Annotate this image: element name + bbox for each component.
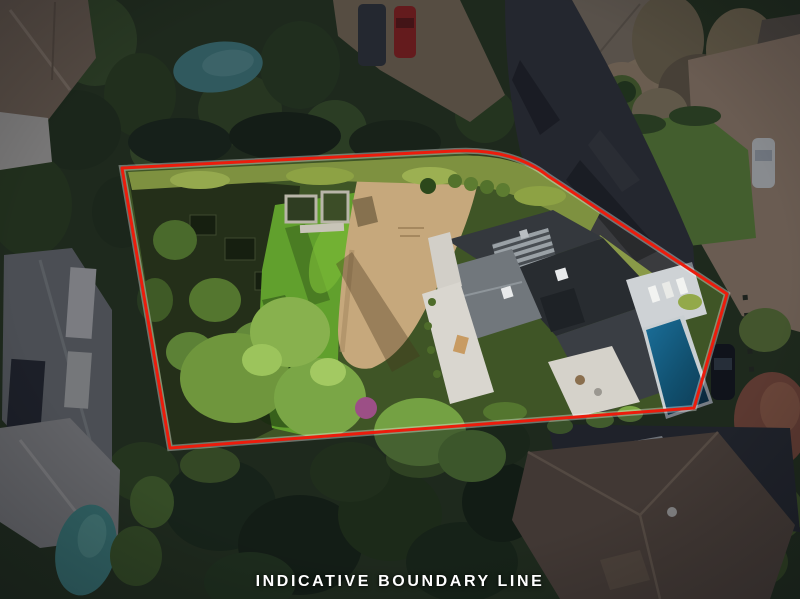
aerial-photo — [0, 0, 800, 599]
vignette — [0, 0, 800, 599]
caption-indicative-boundary: INDICATIVE BOUNDARY LINE — [0, 573, 800, 591]
real-estate-aerial-screenshot: INDICATIVE BOUNDARY LINE — [0, 0, 800, 599]
